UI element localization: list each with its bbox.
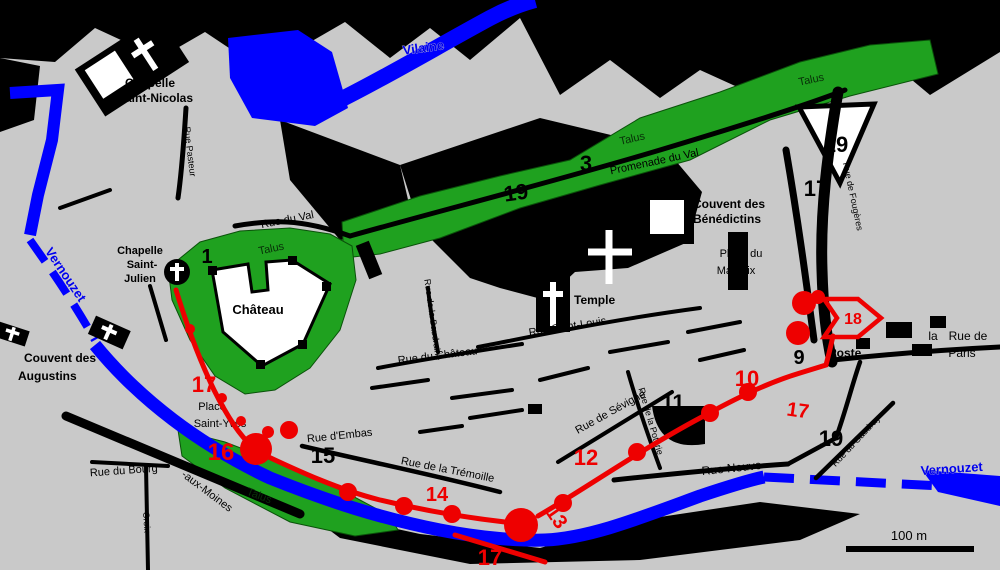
tower [339,483,357,501]
number-9: 9 [793,347,804,369]
number-19-southeast: 19 [819,426,843,451]
building [912,344,932,356]
number-15: 15 [311,443,335,468]
number-10: 10 [735,366,759,391]
label-couvent-augustins: Augustins [18,369,77,383]
label-chapelle-st-nicolas: Chapelle [125,76,175,90]
label-rue-croix: Croix [141,511,152,533]
tower-dot [288,256,297,265]
label-place-marchix: Marchix [717,265,756,277]
label-couvent-augustins: Couvent des [24,351,96,365]
vitre-medieval-map: Vilaine Vernouzet Vernouzet Chapelle Sai… [0,0,1000,570]
building [528,404,542,414]
tower-dot [236,416,246,426]
tower [262,426,274,438]
number-17-east: 17 [785,399,810,424]
label-poste: Poste [829,346,862,360]
label-couvent-benedictins: Couvent des [693,197,765,211]
scale-label: 100 m [891,528,927,543]
number-16: 16 [208,439,235,466]
number-17-south: 17 [478,545,502,570]
scale-bar [846,546,974,552]
building [886,322,912,338]
gate-tower [786,321,810,345]
tower-dot [298,340,307,349]
label-chateau: Château [232,302,283,317]
chapelle-st-julien-building [164,259,190,285]
tower [443,505,461,523]
tower-dot [185,324,195,334]
tower [395,497,413,515]
number-12: 12 [574,445,598,470]
label-couvent-benedictins: Bénédictins [693,212,761,226]
label-chapelle-st-nicolas: Saint-Nicolas [117,91,193,105]
number-17-west: 17 [192,372,216,397]
label-place-marchix: Place du [720,248,763,260]
number-17-northeast: 17 [804,176,828,201]
number-1: 1 [201,246,212,268]
tower [280,421,298,439]
number-3: 3 [580,151,592,176]
tower-dot [322,282,331,291]
number-11: 11 [661,390,684,415]
label-fragment-la: la [928,329,938,343]
label-rue-de-paris: Rue de [949,329,988,343]
label-chapelle-st-julien: Saint- [127,259,158,271]
label-chapelle-st-julien: Chapelle [117,245,163,257]
tower [701,404,719,422]
map-canvas: Vilaine Vernouzet Vernouzet Chapelle Sai… [0,0,1000,570]
tower-bridole [504,508,538,542]
tower-dot [256,360,265,369]
number-14: 14 [426,484,449,506]
label-temple: Temple [574,293,615,307]
label-chapelle-st-julien: Julien [124,273,156,285]
tower-dot [217,393,227,403]
number-19-promenade: 19 [502,178,530,206]
label-rue-de-paris: Paris [948,346,975,360]
dark-area-marchix-bar [728,232,748,290]
tower [628,443,646,461]
benedictins-building [650,200,684,234]
building [930,316,946,328]
number-18: 18 [844,311,862,328]
number-19-northeast: 19 [824,132,848,157]
